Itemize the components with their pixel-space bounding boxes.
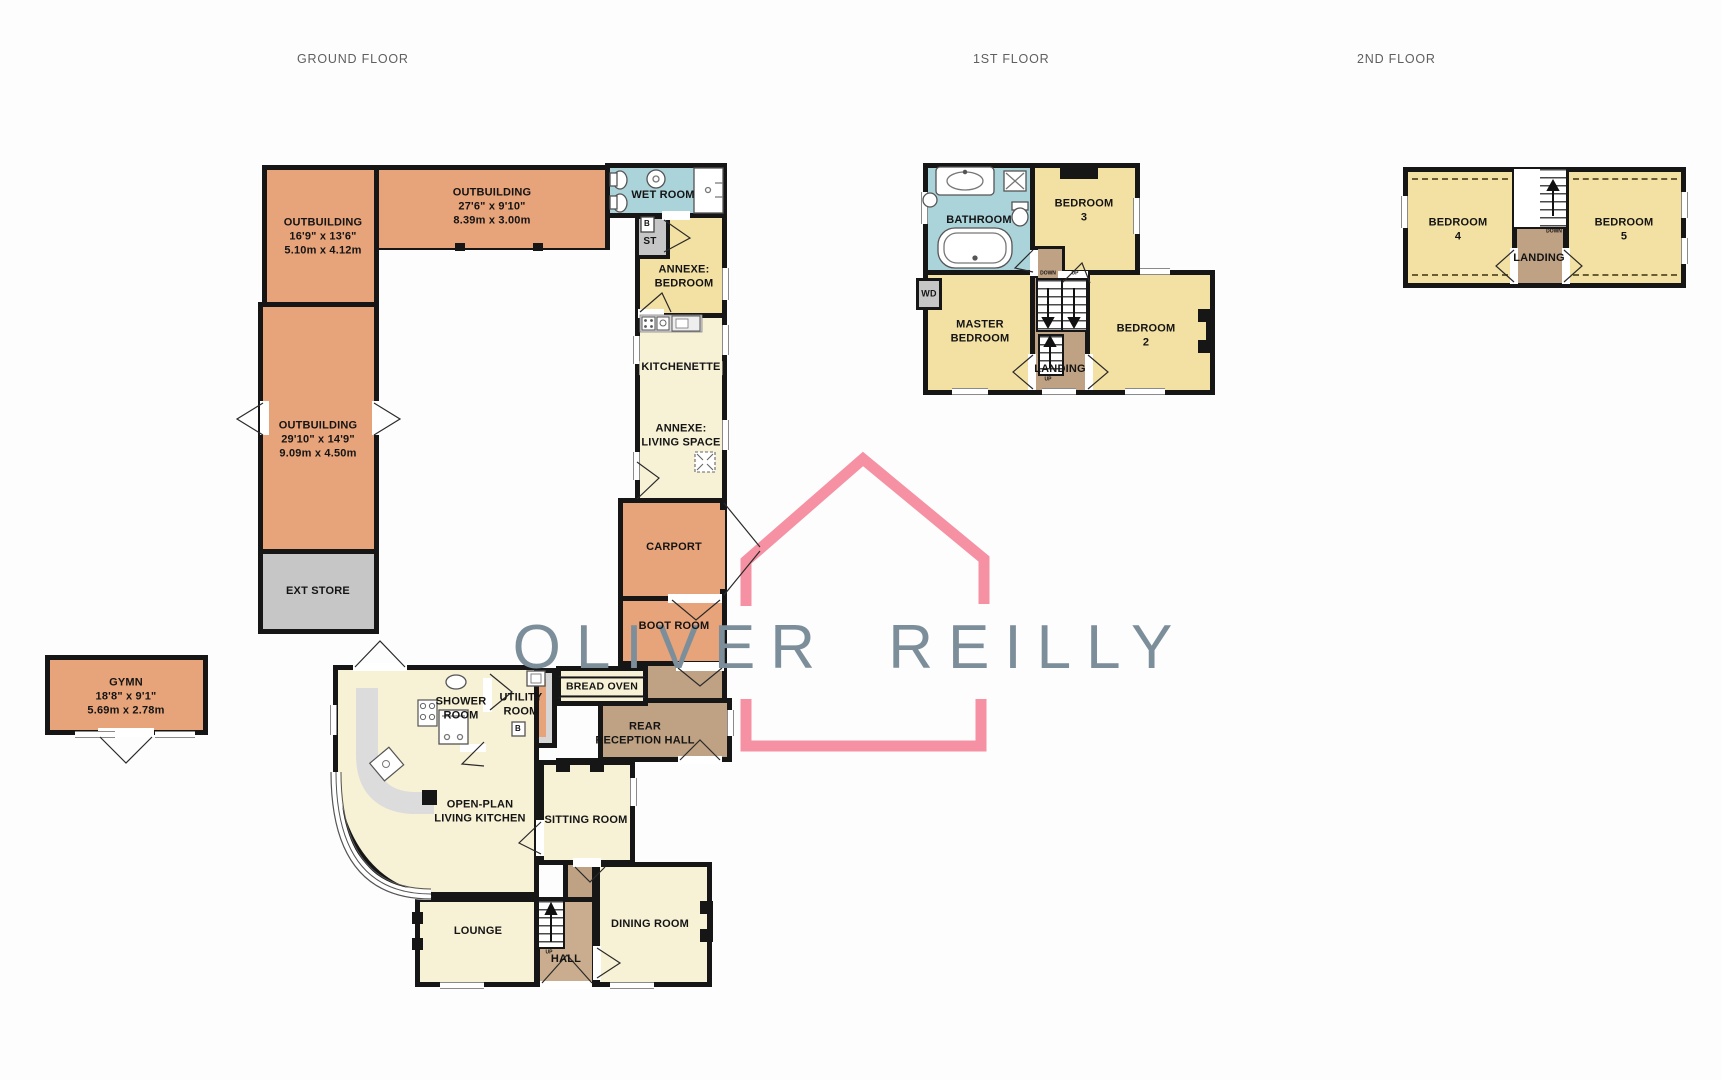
- label-shower-room: SHOWER ROOM: [436, 695, 487, 723]
- second-floor-title: 2ND FLOOR: [1357, 52, 1436, 66]
- label-annexe-living: ANNEXE: LIVING SPACE: [641, 422, 720, 450]
- label-outbuilding-c: OUTBUILDING 29'10" x 14'9" 9.09m x 4.50m: [279, 419, 358, 460]
- label-gym: GYMN 18'8" x 9'1" 5.69m x 2.78m: [87, 676, 164, 717]
- label-bread-oven: BREAD OVEN: [559, 676, 645, 697]
- chimney-lounge-stub: [412, 912, 423, 924]
- restricted-height-line: [1573, 274, 1677, 276]
- label-bedroom4: BEDROOM 4: [1429, 216, 1488, 244]
- chimney-bedroom2: [1206, 309, 1213, 353]
- chimney-sitting-stub: [556, 758, 570, 772]
- room-annexe-kitchen-living: [635, 313, 727, 503]
- room-sitting: [539, 760, 635, 865]
- label-outbuilding-b: OUTBUILDING 27'6" x 9'10" 8.39m x 3.00m: [453, 186, 532, 227]
- label-stair-up: UP: [1072, 272, 1079, 277]
- label-utility-boiler: B: [515, 724, 521, 734]
- label-wd: WD: [921, 288, 936, 299]
- carport-post: [533, 243, 543, 251]
- label-bedroom5: BEDROOM 5: [1595, 216, 1654, 244]
- label-annexe-bedroom: ANNEXE: BEDROOM: [655, 263, 714, 291]
- first-floor-title: 1ST FLOOR: [973, 52, 1049, 66]
- label-lounge: LOUNGE: [454, 925, 502, 939]
- label-bedroom2: BEDROOM 2: [1117, 322, 1176, 350]
- label-wet-room: WET ROOM: [631, 189, 694, 203]
- floorplan-page: GROUND FLOOR 1ST FLOOR 2ND FLOOR: [0, 0, 1721, 1080]
- ground-floor-title: GROUND FLOOR: [297, 52, 409, 66]
- label-stair-down: DOWN: [1040, 272, 1056, 277]
- label-dining: DINING ROOM: [611, 918, 689, 932]
- label-stairs-up: UP: [546, 951, 553, 956]
- ground-stairs: [537, 899, 565, 949]
- restricted-height-line: [1412, 274, 1508, 276]
- label-boot-room: BOOT ROOM: [639, 620, 710, 634]
- second-stairs-treads: [1540, 169, 1566, 227]
- label-boiler: B: [644, 219, 650, 229]
- label-kitchenette: KITCHENETTE: [639, 361, 722, 375]
- label-bathroom: BATHROOM: [946, 214, 1012, 228]
- chimney-lounge-stub: [412, 938, 423, 950]
- restricted-height-line: [1412, 178, 1508, 180]
- label-sitting: SITTING ROOM: [544, 814, 627, 828]
- carport-post: [720, 498, 727, 510]
- brand-wordmark: OLIVER REILLY: [505, 612, 1195, 683]
- chimney-bedroom3: [1060, 163, 1098, 179]
- label-master-bedroom: MASTER BEDROOM: [951, 318, 1010, 346]
- restricted-height-line: [1573, 178, 1677, 180]
- carport-post: [455, 243, 465, 251]
- label-ext-store: EXT STORE: [286, 585, 350, 599]
- label-stair-up2: UP: [1045, 378, 1052, 383]
- label-bedroom3: BEDROOM 3: [1055, 197, 1114, 225]
- chimney-sitting-stub: [590, 758, 604, 772]
- label-utility: UTILITY ROOM: [500, 691, 543, 719]
- label-carport: CARPORT: [646, 541, 702, 555]
- label-st: ST: [643, 236, 656, 249]
- chimney-dining: [707, 901, 713, 942]
- label-landing-first: LANDING: [1034, 363, 1086, 377]
- label-hall: HALL: [551, 953, 581, 967]
- logo-house-icon: [746, 459, 984, 746]
- label-landing-second: LANDING: [1513, 252, 1565, 266]
- label-open-plan: OPEN-PLAN LIVING KITCHEN: [434, 798, 525, 826]
- room-lounge: [415, 897, 539, 987]
- label-rear-reception: REAR RECEPTION HALL: [595, 720, 694, 748]
- label-stair-down2: DOWN: [1546, 230, 1562, 235]
- label-outbuilding-a: OUTBUILDING 16'9" x 13'6" 5.10m x 4.12m: [284, 216, 363, 257]
